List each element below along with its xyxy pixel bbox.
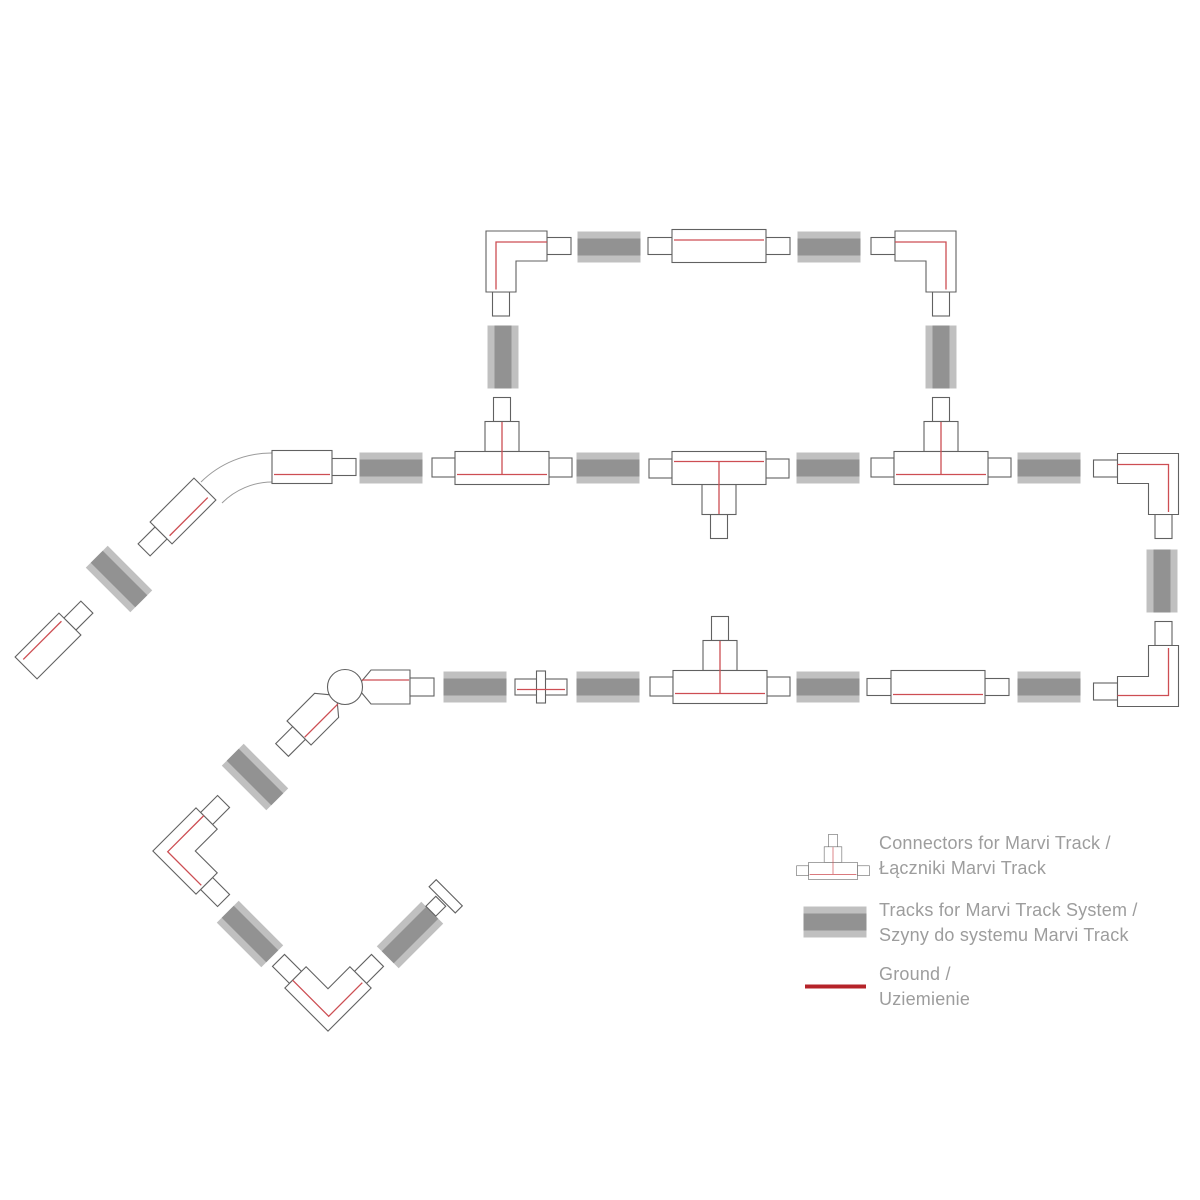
track-segment — [86, 546, 152, 612]
track-segment — [1018, 672, 1081, 703]
l-connector — [153, 791, 273, 911]
track-segment — [577, 672, 640, 703]
track-segment — [578, 232, 641, 263]
legend-ground-line-icon — [805, 985, 866, 989]
t-connector — [649, 452, 789, 539]
track-layout-diagram — [0, 0, 1200, 1200]
track-segment — [1018, 453, 1081, 484]
t-connector — [650, 617, 790, 704]
legend-t-connector-icon — [797, 834, 870, 879]
track-segment — [360, 453, 423, 484]
track-segment — [797, 453, 860, 484]
t-connector — [432, 398, 572, 485]
l-connector — [268, 911, 388, 1031]
l-connector — [486, 231, 571, 316]
straight-connector — [867, 671, 1009, 704]
end-feed-connector — [15, 596, 98, 679]
legend-track-icon — [804, 907, 867, 938]
t-connector — [871, 398, 1011, 485]
track-segment — [488, 326, 519, 389]
track-segment — [222, 744, 288, 810]
ball-joint-connector — [270, 670, 434, 762]
track-segment — [1147, 550, 1178, 613]
straight-connector — [648, 230, 790, 263]
track-segment — [926, 326, 957, 389]
l-connector — [1094, 454, 1179, 539]
end-feed-connector — [133, 478, 216, 561]
straight-connector — [272, 451, 356, 484]
diagram-canvas: Connectors for Marvi Track / Łączniki Ma… — [0, 0, 1200, 1200]
l-connector — [871, 231, 956, 316]
l-connector — [1094, 622, 1179, 707]
track-segment — [798, 232, 861, 263]
track-segment — [797, 672, 860, 703]
track-segment — [444, 672, 507, 703]
mini-connector — [515, 671, 567, 703]
track-segment — [577, 453, 640, 484]
track-segment — [217, 901, 283, 967]
